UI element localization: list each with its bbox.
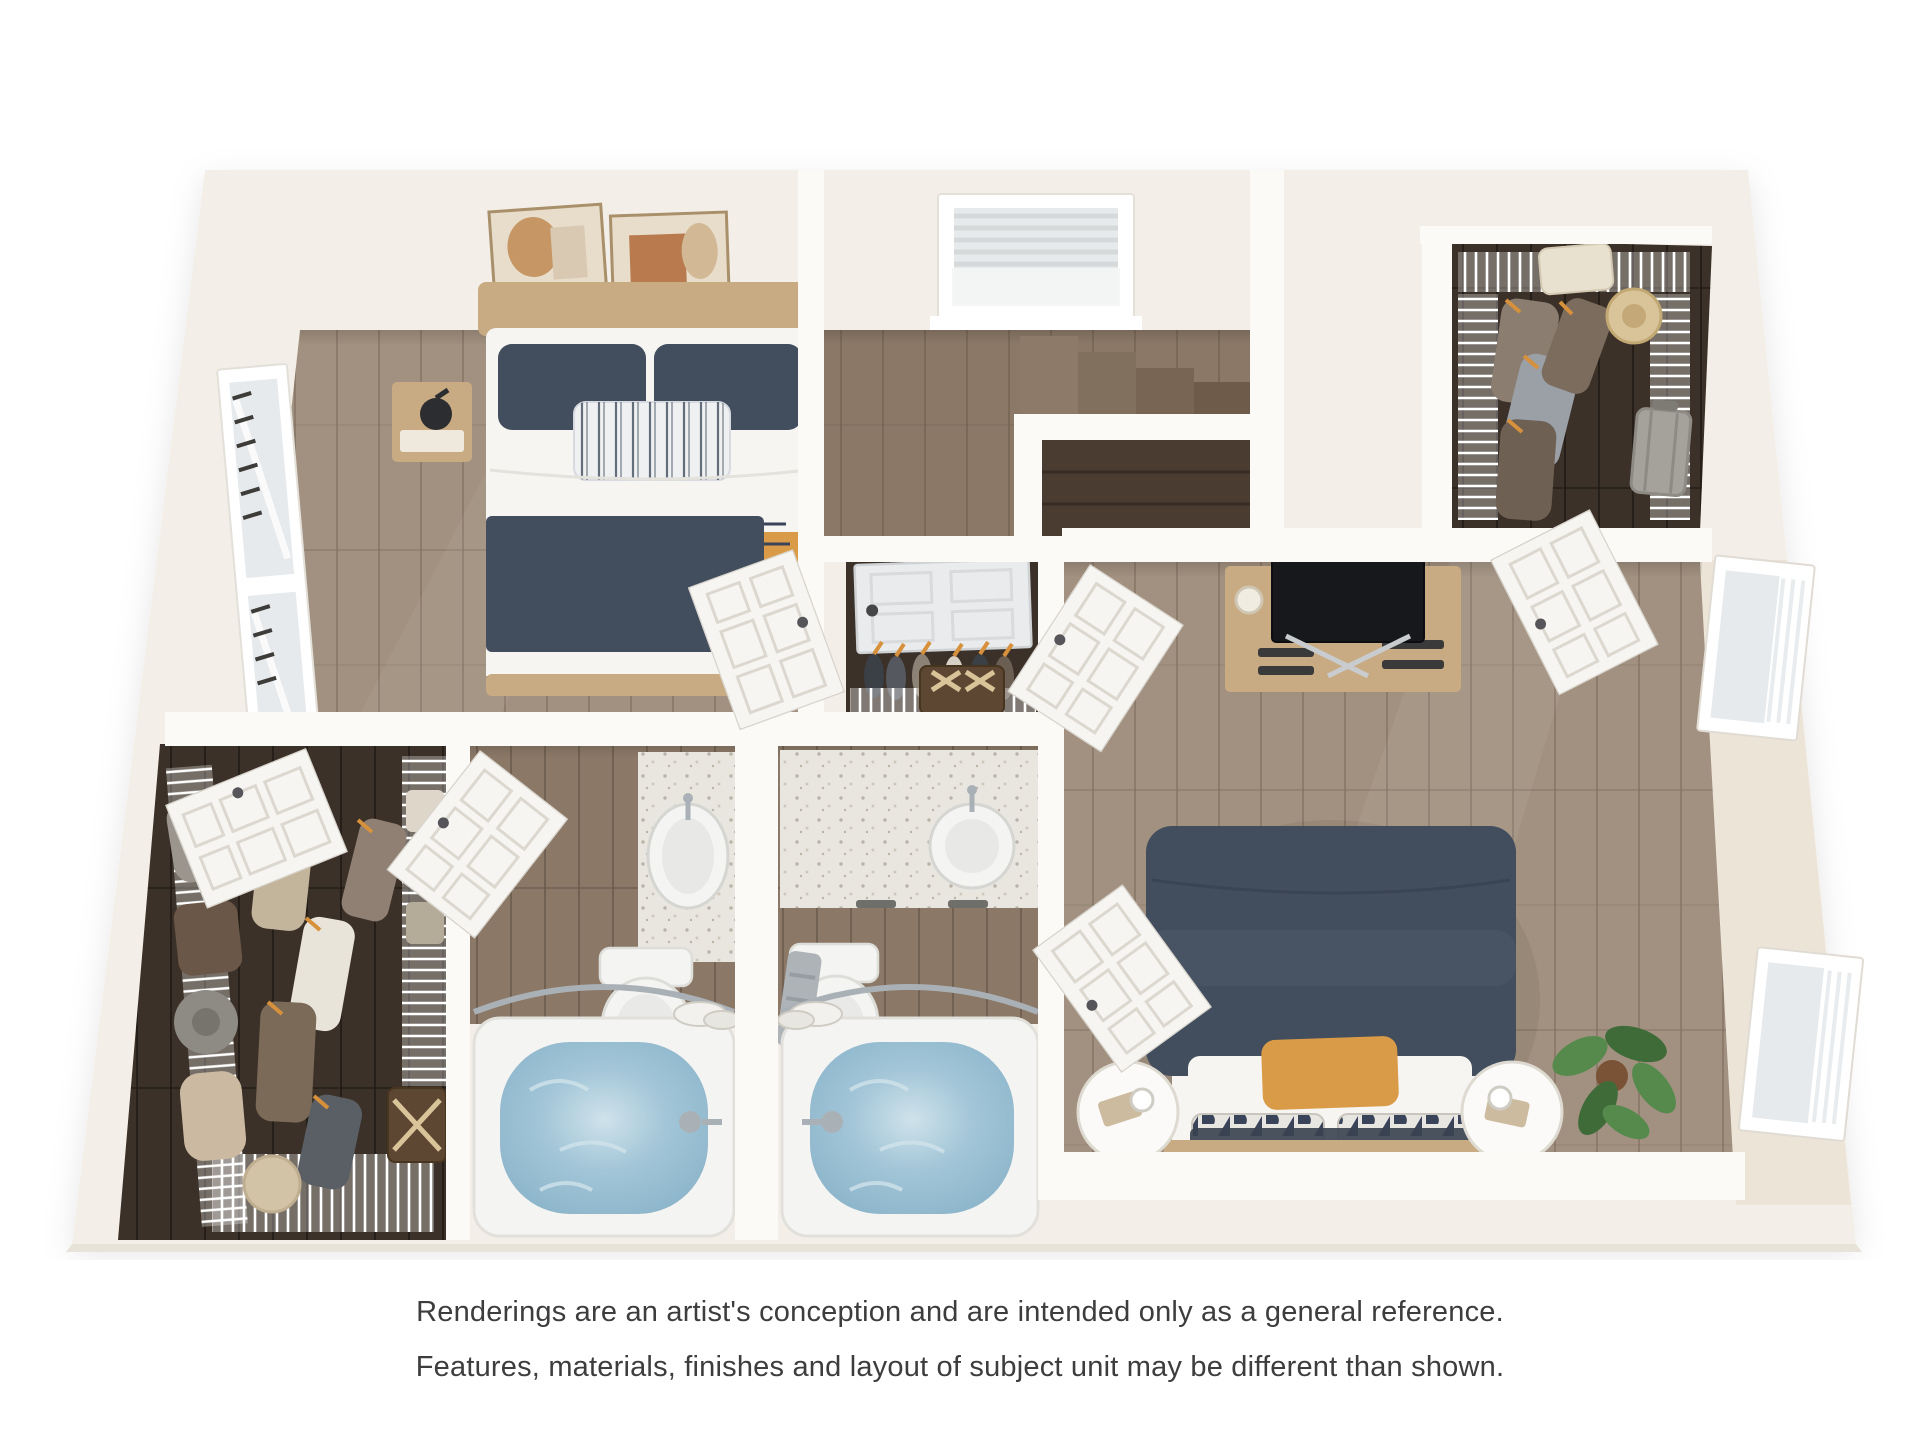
stair-tread [1136, 368, 1194, 420]
cabinet-handle [948, 900, 988, 908]
bedroom2-nightstand-left [392, 382, 472, 462]
master-dresser [1225, 556, 1461, 692]
closet-bl-trunk [388, 1088, 446, 1162]
suitcase [1630, 398, 1692, 496]
window-glass-lower [952, 268, 1120, 306]
wall-hall-bottom [822, 536, 1062, 562]
tub-faucet [821, 1111, 843, 1133]
bed-accent-pillow [574, 402, 730, 480]
master-side-table-right [1462, 1062, 1562, 1162]
room-walkin-closet-master [1452, 240, 1712, 530]
bathtub-water [500, 1042, 708, 1214]
stair-tread [1020, 336, 1078, 420]
coffee-cup [1236, 587, 1262, 613]
bed-headboard [478, 282, 818, 336]
satchel [172, 899, 243, 977]
duffel-bag [178, 1069, 247, 1162]
shell-bottom-edge [66, 1244, 1862, 1252]
television [1272, 556, 1424, 642]
tub-faucet [679, 1111, 701, 1133]
folded-blanket [1538, 243, 1614, 295]
stair-tread [1078, 352, 1136, 420]
disclaimer: Renderings are an artist's conception an… [0, 1296, 1920, 1406]
pouf [244, 1156, 300, 1212]
floor-plan-page: Renderings are an artist's conception an… [0, 0, 1920, 1440]
wall-master-bottom [1038, 1152, 1745, 1200]
fedora-hat [1607, 289, 1661, 343]
table-lamp [420, 398, 452, 430]
bath-right-tub [778, 987, 1038, 1236]
drawer-handle [1258, 666, 1314, 675]
drawer-handle [1258, 648, 1314, 657]
wall-between-baths [735, 744, 778, 1240]
master-window-lower [1739, 947, 1864, 1141]
drawer-handle [1382, 660, 1444, 669]
stairwell-void [1042, 440, 1250, 536]
sphere-lamp [1131, 1089, 1153, 1111]
disclaimer-line-1: Renderings are an artist's conception an… [0, 1296, 1920, 1329]
sphere-lamp [1489, 1087, 1511, 1109]
master-side-table-left [1078, 1062, 1178, 1162]
bath-left-tub [474, 987, 740, 1236]
wall-mid-horizontal [165, 712, 1062, 746]
disclaimer-line-2: Features, materials, finishes and layout… [0, 1351, 1920, 1384]
bath-right-vanity [780, 750, 1038, 908]
cabinet-handle [856, 900, 896, 908]
wall-closet-tr-top [1420, 226, 1712, 244]
stairwell-parapet-top [1014, 414, 1250, 440]
storage-trunk [920, 666, 1004, 714]
floor-plan-rendering [0, 0, 1920, 1260]
stair-window [930, 194, 1142, 330]
bath-left-vanity [638, 752, 737, 962]
wall-closet-tr-left [1422, 240, 1452, 532]
stairwell-parapet-left [1014, 414, 1042, 536]
room-bathroom-right [775, 744, 1040, 1236]
window-sill [930, 316, 1142, 330]
wall-master-top [1062, 528, 1712, 562]
shoe-closet-door-face [855, 559, 1032, 653]
bed-pillow-mustard [1261, 1036, 1399, 1111]
wall-hall-right [1250, 170, 1284, 562]
duvet-fold [1146, 930, 1516, 986]
master-window-upper [1697, 555, 1815, 740]
